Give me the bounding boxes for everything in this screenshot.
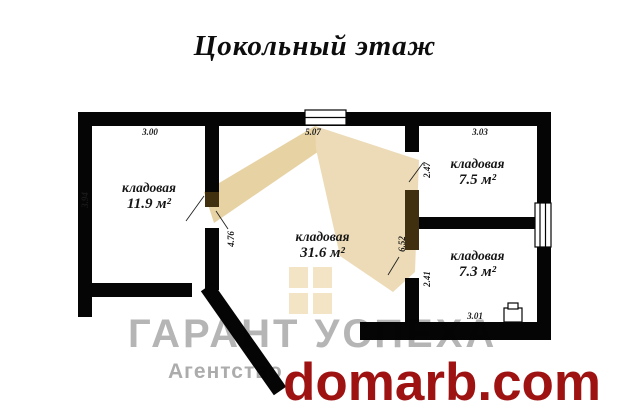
dimension-label: 5.07: [295, 127, 331, 137]
room-area: 11.9 м²: [92, 196, 206, 213]
watermark-site-text: domarb.com: [283, 352, 601, 413]
room-name: кладовая: [420, 248, 535, 264]
page-title: Цокольный этаж: [0, 30, 630, 63]
dimension-label: 2.41: [422, 261, 432, 297]
room-label-storage-7-3: кладовая 7.3 м²: [420, 248, 535, 281]
toilet-icon: [504, 303, 522, 322]
floor-plan-page: Цокольный этаж кладовая 11.9 м² кладовая…: [0, 0, 630, 419]
wall-left-room-bottom: [92, 283, 192, 297]
watermark-roof-icon: [204, 126, 419, 292]
wall-right-rooms-divider: [419, 217, 535, 229]
room-label-storage-31-6: кладовая 31.6 м²: [250, 229, 395, 262]
dimension-label: 3.03: [462, 127, 498, 137]
room-name: кладовая: [92, 180, 206, 196]
window-top-icon: [305, 110, 346, 125]
watermark-agency-text: Агентство: [168, 360, 283, 384]
dimension-label: 2.47: [422, 152, 432, 188]
dimension-label: 3.94: [80, 182, 90, 218]
room-label-storage-7-5: кладовая 7.5 м²: [420, 156, 535, 189]
room-name: кладовая: [250, 229, 395, 245]
room-area: 7.5 м²: [420, 172, 535, 189]
wall-inner-left-lower: [205, 228, 219, 290]
room-label-storage-11-9: кладовая 11.9 м²: [92, 180, 206, 213]
room-name: кладовая: [420, 156, 535, 172]
room-area: 31.6 м²: [250, 245, 395, 262]
window-right-icon: [535, 203, 551, 247]
dimension-label: 3.00: [132, 127, 168, 137]
dimension-label: 4.76: [226, 221, 236, 257]
room-area: 7.3 м²: [420, 264, 535, 281]
dimension-label: 6.52: [397, 226, 407, 262]
logo-window-squares-icon: [289, 267, 332, 314]
watermark-brand-text: ГАРАНТ УСПЕХА: [128, 312, 497, 357]
wall-inner-right-top: [405, 126, 419, 152]
